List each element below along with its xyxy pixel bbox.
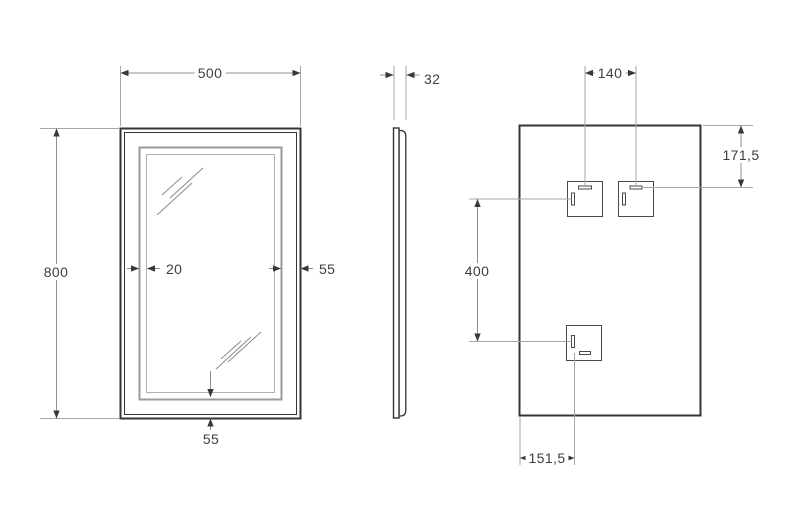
back-panel	[520, 126, 701, 416]
back-view	[520, 126, 701, 416]
bracket-slot-horizontal	[579, 186, 592, 189]
dim-label-band-inset-bottom: 55	[200, 431, 222, 447]
dim-label-bracket-spacing: 140	[595, 65, 626, 81]
dim-label-front-width: 500	[195, 65, 226, 81]
drawing-canvas	[0, 0, 800, 509]
bracket-slot-horizontal	[580, 352, 591, 355]
dim-label-bracket-vertical-spacing: 400	[462, 263, 493, 279]
dim-label-led-band-width: 20	[163, 261, 185, 277]
side-profile-panel	[394, 128, 400, 418]
side-profile-housing	[399, 131, 406, 417]
mounting-bracket-bottom	[567, 326, 602, 361]
dim-label-front-height: 800	[41, 264, 72, 280]
mounting-bracket-top-right	[619, 182, 654, 217]
side-view	[394, 128, 406, 418]
mounting-bracket-top-left	[568, 182, 603, 217]
bracket-slot-vertical	[623, 193, 626, 205]
dim-label-band-inset-side: 55	[316, 261, 338, 277]
mirror-technical-drawing: 500 800 20 55 55 32 140 171,5 400 151,5	[0, 0, 800, 509]
bracket-slot-vertical	[572, 336, 575, 348]
bracket-slot-horizontal	[630, 186, 642, 189]
dimension-depth	[380, 66, 420, 120]
dim-label-depth: 32	[421, 71, 443, 87]
bracket-slot-vertical	[572, 193, 575, 205]
dim-label-bracket-left-offset: 151,5	[525, 450, 568, 466]
dim-label-bracket-top-offset: 171,5	[719, 147, 762, 163]
